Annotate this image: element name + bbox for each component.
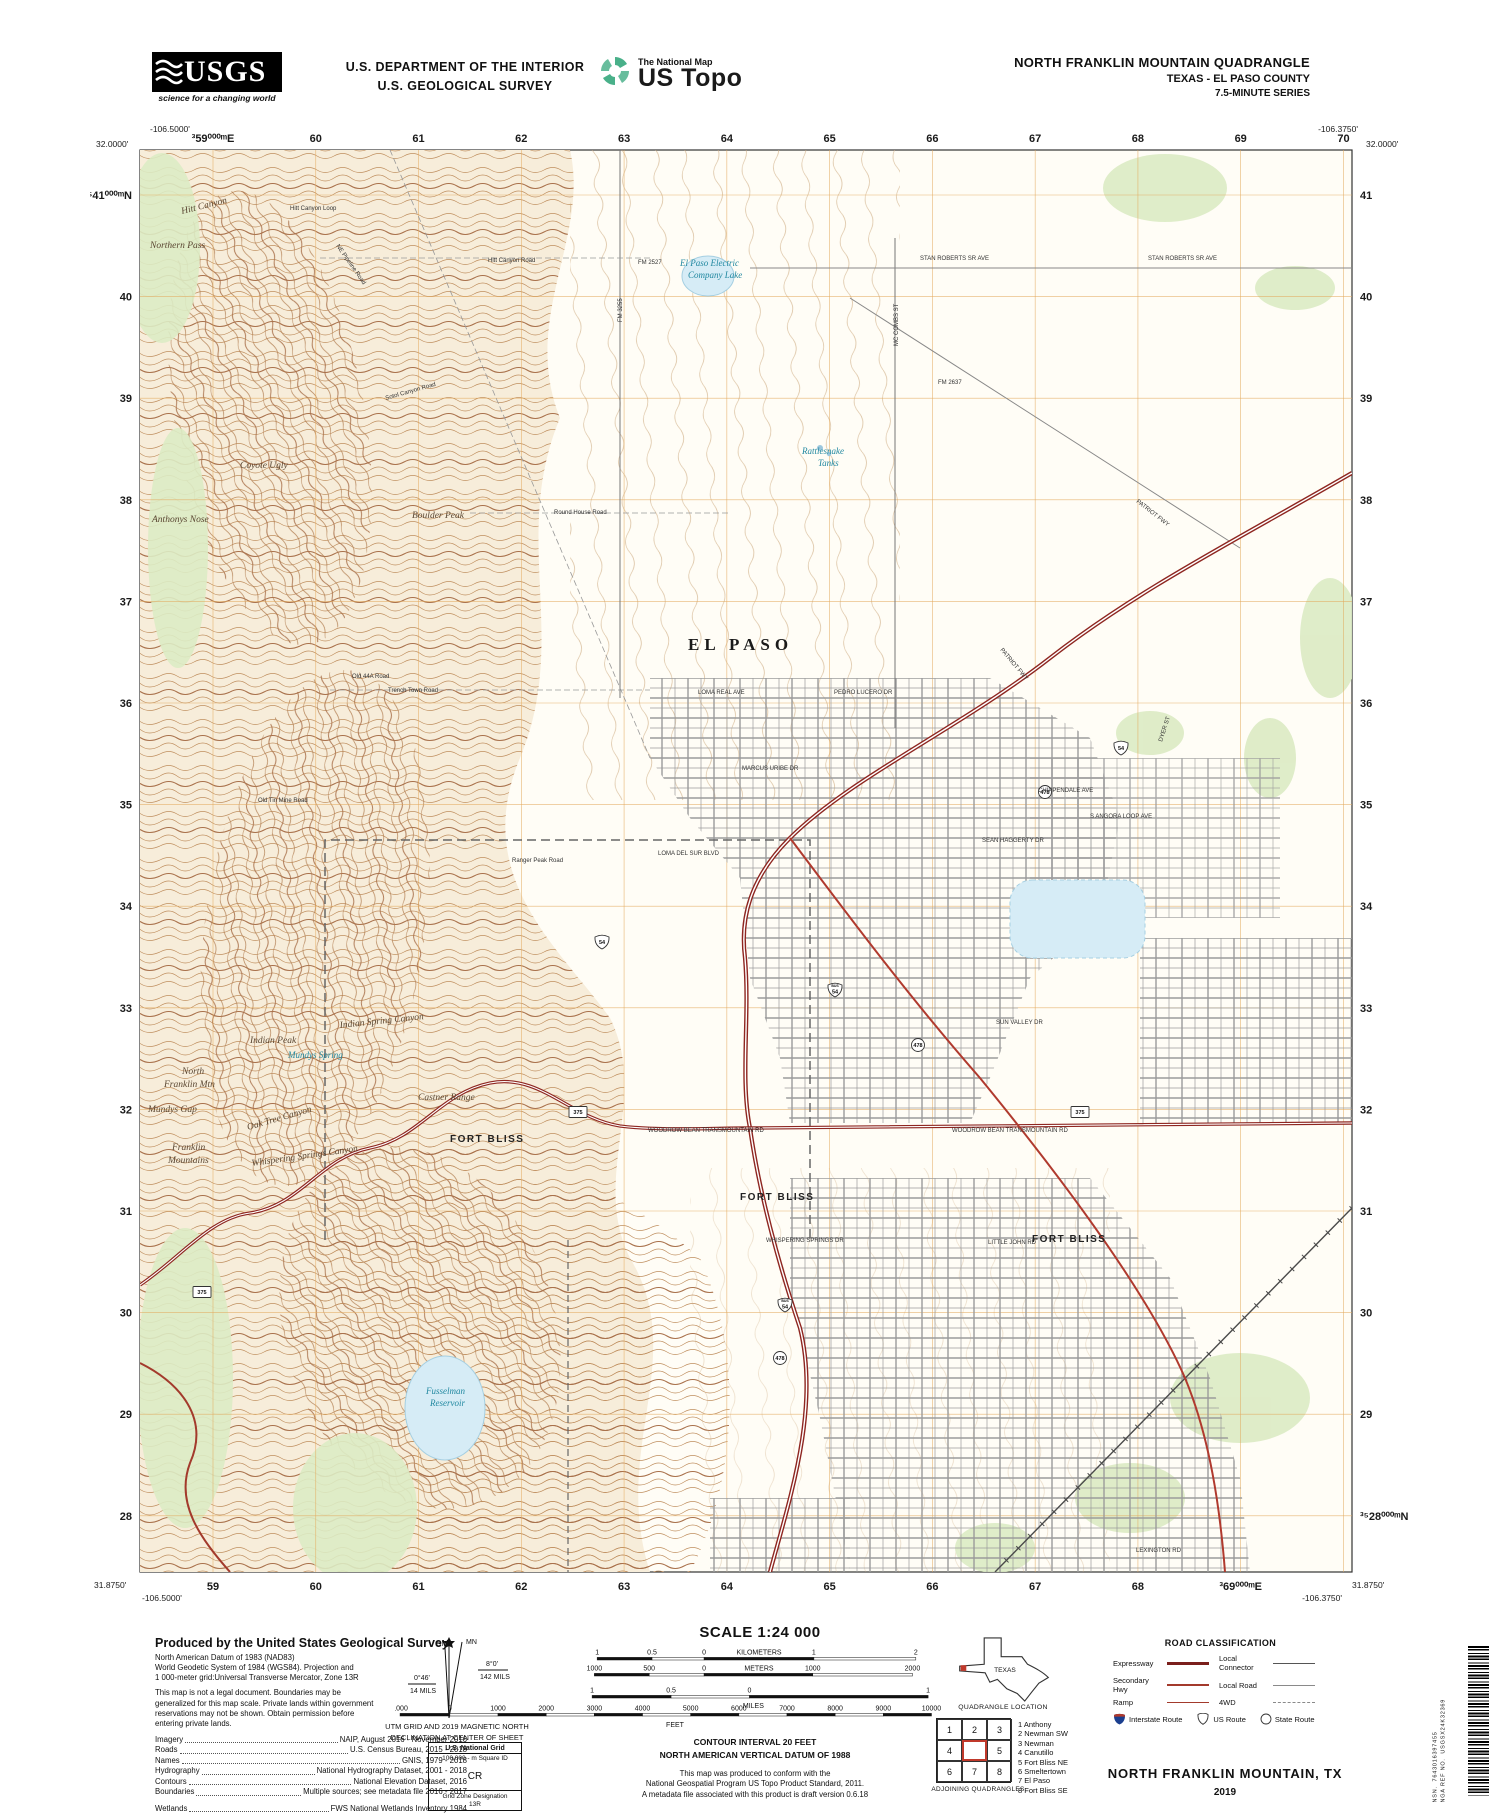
vdatum-note-line: NORTH AMERICAN VERTICAL DATUM OF 1988 [545, 1749, 965, 1762]
adjoining-cell: 3 [987, 1719, 1012, 1740]
scale-bar: 1000500010002000METERS [587, 1666, 921, 1677]
map-label: FM 3255 [618, 298, 624, 322]
easting-label: 63 [618, 133, 630, 145]
easting-label: 67 [1029, 133, 1041, 145]
northing-label: 33 [1360, 1003, 1372, 1015]
northing-label: 39 [1360, 393, 1372, 405]
scale-tick-label: 5000 [683, 1706, 699, 1713]
credit-row: ContoursNational Elevation Dataset, 2016 [155, 1777, 467, 1788]
route-shield: 375 [569, 1107, 587, 1118]
map-label: LITTLE JOHN RD [988, 1240, 1037, 1246]
usng-title: U.S. National Grid [429, 1743, 521, 1754]
usng-square-id: CR [429, 1763, 521, 1790]
map-label: STAN ROBERTS SR AVE [920, 256, 989, 262]
adjoining-cell [962, 1740, 987, 1761]
quad-location-marker [961, 1665, 967, 1671]
barcode-text: NSN. 7643016397455 NGA REF NO. USGSX24K3… [1432, 1652, 1449, 1802]
map-label: WOODROW BEAN TRANSMOUNTAIN RD [648, 1128, 764, 1134]
northing-label: 29 [1360, 1409, 1372, 1421]
northing-label: 32 [1360, 1104, 1372, 1116]
interstate-shield-icon [1113, 1713, 1126, 1725]
northing-label: 39 [120, 393, 132, 405]
map-label: Mountains [167, 1156, 209, 1166]
northing-label: 31 [120, 1206, 132, 1218]
easting-label: 66 [926, 133, 938, 145]
scale-tick-label: 1000 [587, 1666, 603, 1673]
map-notes: CONTOUR INTERVAL 20 FEET NORTH AMERICAN … [545, 1736, 965, 1801]
easting-label: 62 [515, 133, 527, 145]
svg-text:54: 54 [599, 940, 606, 946]
map-label: MARCUS URIBE DR [742, 766, 799, 772]
secondary-hwy-line-sample [1167, 1684, 1209, 1686]
northing-label: ³⁵28⁰⁰⁰ᵐN [1360, 1511, 1409, 1523]
map-label: Ranger Peak Road [512, 858, 563, 864]
contour-interval-note: CONTOUR INTERVAL 20 FEET NORTH AMERICAN … [545, 1736, 965, 1762]
scale-tick-label: 500 [643, 1666, 655, 1673]
easting-label: 65 [823, 1581, 835, 1593]
scale-tick-label: 1 [926, 1688, 930, 1695]
northing-label: 41 [1360, 190, 1372, 202]
corner-coordinate: -106.5000' [150, 124, 190, 134]
adjoining-cell: 1 [937, 1719, 962, 1740]
road-class-title: ROAD CLASSIFICATION [1113, 1638, 1328, 1648]
map-label: PEDRO LUCERO DR [834, 690, 893, 696]
road-class-row: Expressway Local Connector [1113, 1654, 1328, 1672]
northing-label: 38 [1360, 495, 1372, 507]
map-label: North [181, 1067, 204, 1077]
usng-box: U.S. National Grid 100,000 - m Square ID… [428, 1742, 522, 1811]
corner-coordinate: -106.3750' [1318, 124, 1358, 134]
map-label: Fusselman [425, 1386, 465, 1396]
easting-label: 65 [823, 133, 835, 145]
map-label: CHIPPENDALE AVE [1038, 788, 1093, 794]
svg-text:BUS: BUS [831, 984, 839, 988]
ustopo-label: US Topo [638, 67, 742, 91]
ustopo-logo: The National Map US Topo [598, 54, 742, 93]
easting-label: ³59⁰⁰⁰ᵐE [192, 133, 235, 145]
scale-unit: KILOMETERS [736, 1650, 781, 1657]
map-label: Anthonys Nose [151, 515, 209, 525]
scale-unit: FEET [666, 1722, 685, 1729]
corner-coordinate: -106.3750' [1302, 1593, 1342, 1603]
adjoining-quadrangles: 12345678 [936, 1718, 1012, 1783]
credit-row: WetlandsFWS National Wetlands Inventory … [155, 1804, 467, 1814]
scale-tick-label: 2000 [538, 1706, 554, 1713]
easting-label: 68 [1132, 1581, 1144, 1593]
scale-tick-label: 6000 [731, 1706, 747, 1713]
scale-tick-label: 2000 [905, 1666, 921, 1673]
credit-row: HydrographyNational Hydrography Dataset,… [155, 1766, 467, 1777]
map-sheet: 5454BUS54BUS54478478478375375375 EL PASO… [90, 118, 1500, 1618]
map-label: Round House Road [554, 510, 607, 516]
conformance-note: This map was produced to conform with th… [545, 1769, 965, 1802]
road-class-row: Secondary Hwy Local Road [1113, 1676, 1328, 1694]
map-label: El Paso Electric [679, 258, 739, 268]
northing-label: ³⁵41⁰⁰⁰ᵐN [90, 190, 132, 202]
map-label: Trench Town Road [388, 688, 438, 694]
map-label: Old Tin Mine Road [258, 798, 308, 804]
nsn-line: NSN. 7643016397455 [1432, 1652, 1440, 1802]
quad-series: 7.5-MINUTE SERIES [890, 88, 1310, 99]
dept-line2: U.S. GEOLOGICAL SURVEY [300, 77, 630, 96]
easting-label: 61 [412, 1581, 424, 1593]
map-label: Old 44A Road [352, 674, 389, 680]
sheet-name: NORTH FRANKLIN MOUNTAIN, TX [1055, 1766, 1395, 1781]
easting-label: 66 [926, 1581, 938, 1593]
scale-tick-label: 8000 [827, 1706, 843, 1713]
map-label: SEAN HAGGERTY DR [982, 838, 1044, 844]
usng-zone: 13R [429, 1801, 521, 1810]
northing-label: 37 [1360, 596, 1372, 608]
mn-label: MN [466, 1639, 477, 1646]
northing-label: 35 [1360, 800, 1372, 812]
interstate-legend-item: Interstate Route [1113, 1713, 1182, 1725]
expressway-line-sample [1167, 1662, 1209, 1665]
road-class-label: Ramp [1113, 1698, 1165, 1707]
quadrangle-title: NORTH FRANKLIN MOUNTAIN QUADRANGLE TEXAS… [890, 55, 1310, 99]
scale-tick-label: 1000 [805, 1666, 821, 1673]
easting-label: 64 [721, 1581, 734, 1593]
sheet-name-block: NORTH FRANKLIN MOUNTAIN, TX 2019 [1055, 1766, 1395, 1798]
map-label: Coyote Ugly [240, 461, 289, 471]
barcode-icon [1468, 1646, 1489, 1796]
adjoining-cell: 5 [987, 1740, 1012, 1761]
credit-row: RoadsU.S. Census Bureau, 2015 - 2018 [155, 1745, 467, 1756]
adjoining-caption: ADJOINING QUADRANGLES [908, 1786, 1048, 1793]
ustopo-text: The National Map US Topo [638, 57, 742, 91]
source-credits-list: ImageryNAIP, August 2016 - November 2016… [155, 1735, 467, 1814]
map-label: S ANGORA LOOP AVE [1090, 814, 1152, 820]
northing-label: 30 [1360, 1308, 1372, 1320]
northing-label: 40 [1360, 292, 1372, 304]
usng-zone-label: Grid Zone Designation [429, 1790, 521, 1801]
corner-coordinate: 32.0000' [96, 139, 129, 149]
northing-label: 32 [120, 1104, 132, 1116]
conform-line: A metadata file associated with this pro… [545, 1790, 965, 1801]
scale-tick-label: 0 [748, 1688, 752, 1695]
scale-tick-label: 9000 [876, 1706, 892, 1713]
scale-tick-label: 4000 [635, 1706, 651, 1713]
map-label: Indian Peak [249, 1036, 297, 1046]
scale-bar: 1000010002000300040005000600070008000900… [395, 1706, 941, 1730]
svg-text:54: 54 [832, 990, 839, 996]
quadrangle-location-caption: QUADRANGLE LOCATION [938, 1704, 1068, 1711]
easting-label: 60 [310, 1581, 322, 1593]
map-label: FORT BLISS [1032, 1234, 1106, 1245]
map-label: FM 2527 [638, 260, 662, 266]
corner-coordinate: -106.5000' [142, 1593, 182, 1603]
barcode-block: NSN. 7643016397455 NGA REF NO. USGSX24K3… [1448, 1646, 1494, 1806]
scale-tick-label: 1 [595, 1650, 599, 1657]
road-class-label: Local Connector [1219, 1654, 1271, 1672]
ramp-line-sample [1167, 1702, 1209, 1703]
scale-tick-label: 1000 [490, 1706, 506, 1713]
state-route-legend-item: State Route [1260, 1713, 1315, 1725]
northing-label: 28 [120, 1511, 132, 1523]
svg-text:54: 54 [782, 1305, 789, 1311]
quadrangle-location: TEXAS [952, 1636, 1056, 1707]
local-connector-line-sample [1273, 1663, 1315, 1664]
northing-label: 34 [1360, 901, 1373, 913]
road-classification: ROAD CLASSIFICATION Expressway Local Con… [1113, 1638, 1328, 1725]
scale-tick-label: 0 [702, 1666, 706, 1673]
usgs-logo: USGS science for a changing world [152, 52, 282, 103]
conform-line: National Geospatial Program US Topo Prod… [545, 1779, 965, 1790]
adjoining-cell: 6 [937, 1761, 962, 1782]
svg-text:54: 54 [1118, 746, 1125, 752]
department-heading: U.S. DEPARTMENT OF THE INTERIOR U.S. GEO… [300, 58, 630, 97]
map-label: LOMA REAL AVE [698, 690, 745, 696]
northing-label: 30 [120, 1308, 132, 1320]
us-route-legend-item: US Route [1196, 1713, 1246, 1725]
scale-unit: METERS [744, 1666, 774, 1673]
easting-label: 61 [412, 133, 424, 145]
conform-line: This map was produced to conform with th… [545, 1769, 965, 1780]
corner-coordinate: 31.8750' [1352, 1580, 1385, 1590]
scale-bars: 10.5012KILOMETERS1000500010002000METERS1… [395, 1646, 955, 1738]
map-label: LEXINGTON RD [1136, 1548, 1182, 1554]
topo-map: 5454BUS54BUS54478478478375375375 EL PASO… [90, 118, 1500, 1618]
northing-label: 36 [120, 698, 132, 710]
scale-tick-label: 7000 [779, 1706, 795, 1713]
scale-tick-label: 0 [448, 1706, 452, 1713]
svg-text:478: 478 [775, 1356, 784, 1362]
road-class-row: Ramp 4WD [1113, 1698, 1328, 1707]
usgs-logo-box: USGS [152, 52, 282, 92]
route-shield: 478 [912, 1039, 925, 1052]
easting-label: 60 [310, 133, 322, 145]
scale-bar: 10.5012KILOMETERS [595, 1650, 918, 1661]
northing-label: 29 [120, 1409, 132, 1421]
shield-label: State Route [1275, 1715, 1315, 1724]
contour-note-line: CONTOUR INTERVAL 20 FEET [545, 1736, 965, 1749]
state-route-circle-icon [1260, 1713, 1272, 1725]
map-label: FORT BLISS [450, 1134, 524, 1145]
scale-tick-label: 0 [702, 1650, 706, 1657]
scale-tick-label: 0.5 [647, 1650, 657, 1657]
svg-text:478: 478 [913, 1043, 922, 1049]
usgs-topo-sheet: { "header": { "usgs_word": "USGS", "usgs… [0, 0, 1500, 1813]
easting-label: ³69⁰⁰⁰ᵐE [1219, 1581, 1262, 1593]
northing-label: 35 [120, 800, 132, 812]
easting-label: 59 [207, 1581, 219, 1593]
road-class-label: 4WD [1219, 1698, 1271, 1707]
map-label: Franklin [171, 1143, 205, 1153]
northing-label: 37 [120, 596, 132, 608]
map-label: Hitt Canyon Road [488, 258, 535, 264]
adjoining-cell: 7 [962, 1761, 987, 1782]
usgs-waves-icon [154, 56, 184, 88]
map-label: STAN ROBERTS SR AVE [1148, 256, 1217, 262]
quad-state-county: TEXAS - EL PASO COUNTY [890, 73, 1310, 85]
corner-coordinate: 32.0000' [1366, 139, 1399, 149]
map-label: Franklin Mtn [163, 1080, 215, 1090]
map-label: EL PASO [688, 635, 793, 654]
nga-line: NGA REF NO. USGSX24K32369 [1440, 1652, 1448, 1802]
map-label: Mundys Gap [147, 1105, 197, 1115]
svg-text:375: 375 [197, 1290, 206, 1296]
northing-label: 38 [120, 495, 132, 507]
quad-name: NORTH FRANKLIN MOUNTAIN QUADRANGLE [890, 55, 1310, 70]
easting-label: 68 [1132, 133, 1144, 145]
northing-label: 34 [120, 901, 133, 913]
dept-line1: U.S. DEPARTMENT OF THE INTERIOR [300, 58, 630, 77]
road-class-label: Expressway [1113, 1659, 1165, 1668]
easting-label: 70 [1337, 133, 1349, 145]
adjoining-name: 3 Newman [1018, 1739, 1068, 1748]
map-label: SUN VALLEY DR [996, 1020, 1043, 1026]
scale-tick-label: 1 [590, 1688, 594, 1695]
easting-label: 69 [1235, 133, 1247, 145]
credit-row: BoundariesMultiple sources; see metadata… [155, 1787, 467, 1798]
adjoining-name: 1 Anthony [1018, 1720, 1068, 1729]
map-label: Mundys Spring [287, 1050, 343, 1060]
scale-tick-label: 0.5 [666, 1688, 676, 1695]
road-class-label: Secondary Hwy [1113, 1676, 1165, 1694]
northing-label: 31 [1360, 1206, 1372, 1218]
map-label: LOMA DEL SUR BLVD [658, 851, 720, 857]
map-label: FORT BLISS [740, 1192, 814, 1203]
national-map-icon [598, 54, 632, 93]
map-label: Hitt Canyon Loop [290, 206, 337, 212]
corner-coordinate: 31.8750' [94, 1580, 127, 1590]
route-shield: 478 [774, 1352, 787, 1365]
scale-tick-label: 3000 [587, 1706, 603, 1713]
map-label: MC COMBS ST [894, 303, 900, 346]
local-road-line-sample [1273, 1685, 1315, 1686]
map-label: Reservoir [429, 1398, 465, 1408]
adjoining-name: 2 Newman SW [1018, 1729, 1068, 1738]
route-shield: 375 [193, 1287, 211, 1298]
adjoining-grid: 12345678 [936, 1718, 1011, 1783]
svg-text:375: 375 [1075, 1110, 1084, 1116]
adjoining-name: 4 Canutillo [1018, 1748, 1068, 1757]
svg-text:375: 375 [573, 1110, 582, 1116]
map-label: FM 2637 [938, 380, 962, 386]
map-label: Castner Range [418, 1093, 475, 1103]
map-label: WOODROW BEAN TRANSMOUNTAIN RD [952, 1128, 1068, 1134]
easting-label: 63 [618, 1581, 630, 1593]
svg-text:BUS: BUS [781, 1299, 789, 1303]
map-label: Tanks [818, 458, 839, 468]
adjoining-cell: 2 [962, 1719, 987, 1740]
northing-label: 40 [120, 292, 132, 304]
sheet-year: 2019 [1055, 1787, 1395, 1798]
fourwd-line-sample [1273, 1702, 1315, 1703]
texas-label: TEXAS [994, 1667, 1016, 1674]
scale-tick-label: 1 [812, 1650, 816, 1657]
map-label: Company Lake [688, 270, 742, 280]
route-shield-legend: Interstate Route US Route State Route [1113, 1713, 1328, 1725]
route-shield: 375 [1071, 1107, 1089, 1118]
adjoining-cell: 8 [987, 1761, 1012, 1782]
scale-tick-label: 2 [914, 1650, 918, 1657]
usgs-wordmark: USGS [184, 55, 266, 89]
usgs-tagline: science for a changing world [152, 93, 282, 103]
map-label: Northern Pass [149, 241, 205, 251]
northing-label: 36 [1360, 698, 1372, 710]
credit-row: NamesGNIS, 1979 - 2018 [155, 1756, 467, 1767]
map-label: Rattlesnake [801, 446, 844, 456]
easting-label: 62 [515, 1581, 527, 1593]
road-class-label: Local Road [1219, 1681, 1271, 1690]
adjoining-cell: 4 [937, 1740, 962, 1761]
scale-title: SCALE 1:24 000 [545, 1624, 975, 1641]
easting-label: 67 [1029, 1581, 1041, 1593]
scale-tick-label: 1000 [395, 1706, 408, 1713]
shield-label: Interstate Route [1129, 1715, 1182, 1724]
shield-label: US Route [1213, 1715, 1246, 1724]
map-label: WHISPERING SPRINGS DR [766, 1238, 844, 1244]
map-label: Boulder Peak [412, 511, 465, 521]
usng-square-label: 100,000 - m Square ID [429, 1754, 521, 1763]
northing-label: 33 [120, 1003, 132, 1015]
easting-label: 64 [721, 133, 734, 145]
us-route-shield-icon [1196, 1713, 1210, 1725]
